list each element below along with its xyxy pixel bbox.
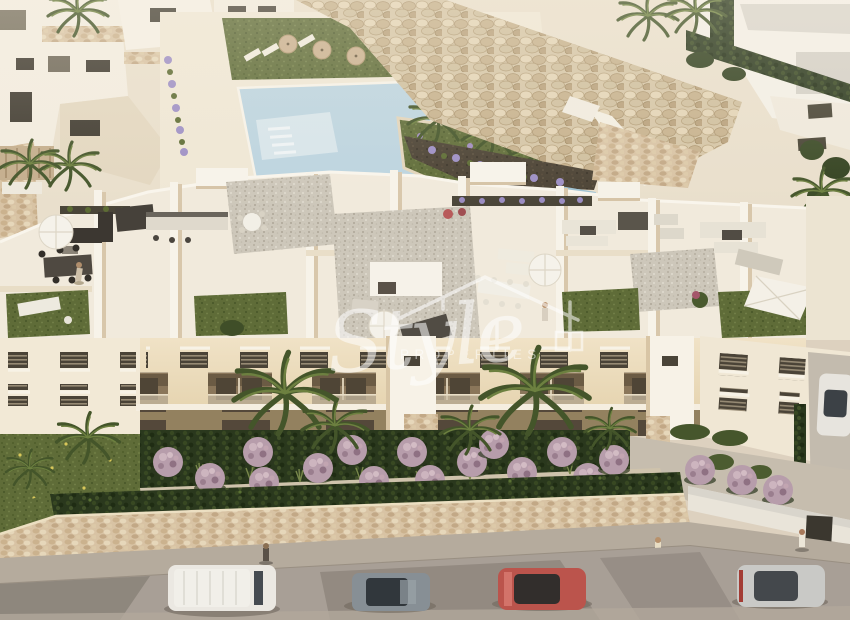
window-row xyxy=(8,384,136,406)
aerial-property-render: Style PROPERTIES xyxy=(0,0,850,620)
red-car xyxy=(492,568,592,611)
white-van xyxy=(164,565,280,617)
watermark-brand-script: Style xyxy=(323,282,525,393)
window-row xyxy=(8,352,136,374)
watermark-brand-caps: PROPERTIES xyxy=(400,347,542,362)
sunlight-haze xyxy=(0,0,850,210)
dining-table xyxy=(43,254,92,277)
grey-suv xyxy=(344,573,436,613)
white-car xyxy=(816,373,850,437)
silver-car xyxy=(732,565,828,609)
roof-lawn xyxy=(562,288,640,332)
screenshot-canvas: Style PROPERTIES xyxy=(0,0,850,620)
person xyxy=(76,262,82,268)
roof-lawn xyxy=(6,290,90,338)
